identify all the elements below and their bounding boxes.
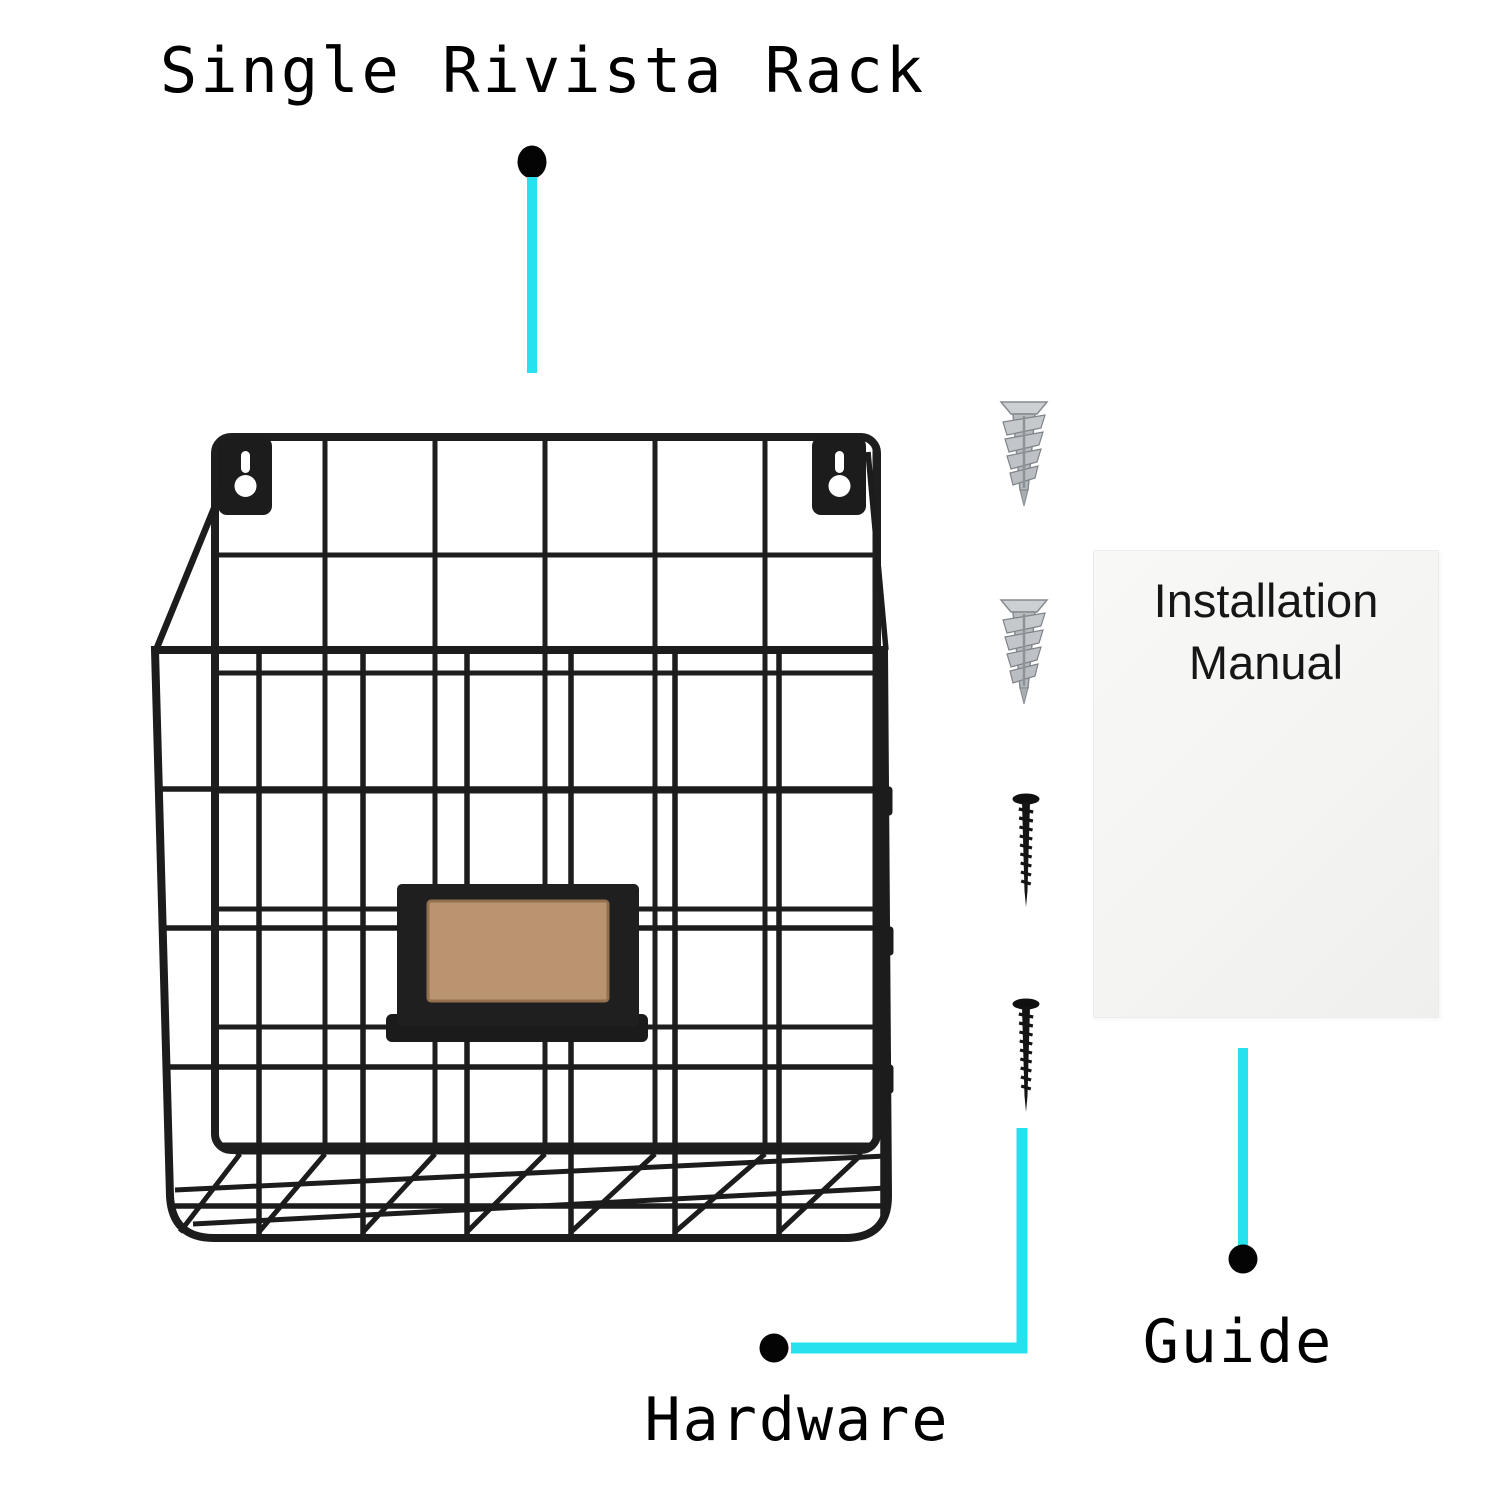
- guide-callout-line: [1238, 1048, 1248, 1246]
- wire-basket: [155, 437, 890, 1238]
- installation-manual-card: Installation Manual: [1093, 550, 1439, 1018]
- hardware-callout-dot: [760, 1334, 789, 1363]
- product-title: Single Rivista Rack: [160, 36, 926, 106]
- guide-callout-dot: [1229, 1245, 1258, 1274]
- keyhole-tab-right: [812, 437, 866, 515]
- rack-callout-dot: [518, 146, 547, 179]
- label-holder: [386, 884, 648, 1042]
- guide-label: Guide: [1143, 1306, 1334, 1378]
- screw-2: [1013, 999, 1040, 1113]
- label-insert: [428, 901, 608, 1001]
- guide-callout: [1229, 1048, 1258, 1274]
- rack-callout: [518, 146, 547, 374]
- drywall-anchor-1: [1001, 402, 1047, 506]
- hardware-label: Hardware: [645, 1384, 950, 1456]
- rack-callout-line: [527, 177, 537, 373]
- manual-title: Installation Manual: [1093, 550, 1439, 694]
- product-infographic: Single Rivista Rack Installation Manual …: [0, 0, 1500, 1500]
- screw-1: [1013, 794, 1040, 908]
- drywall-anchor-2: [1001, 600, 1047, 704]
